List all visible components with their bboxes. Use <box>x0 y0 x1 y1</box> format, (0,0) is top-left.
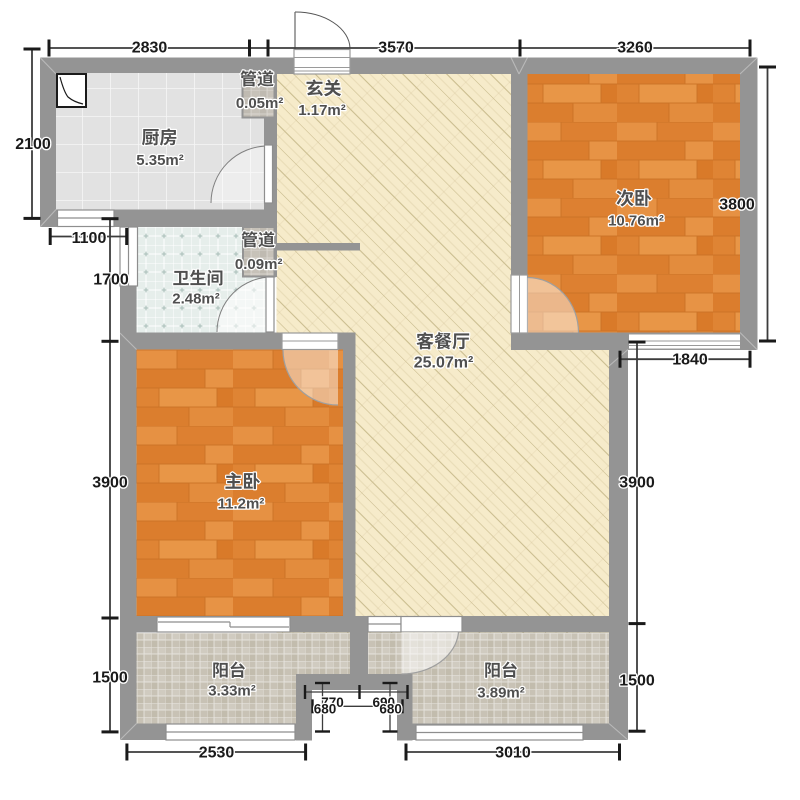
svg-text:3900: 3900 <box>619 475 655 492</box>
svg-text:3260: 3260 <box>617 40 653 57</box>
svg-text:2100: 2100 <box>15 136 51 153</box>
svg-text:680: 680 <box>379 702 402 717</box>
svg-text:1500: 1500 <box>619 673 655 690</box>
svg-text:10.76m²: 10.76m² <box>608 213 664 230</box>
svg-text:1700: 1700 <box>93 272 129 289</box>
svg-text:3900: 3900 <box>92 475 128 492</box>
svg-text:2530: 2530 <box>199 744 235 761</box>
svg-text:3.89m²: 3.89m² <box>477 685 525 702</box>
svg-text:680: 680 <box>314 702 337 717</box>
svg-text:5.35m²: 5.35m² <box>136 152 184 169</box>
svg-text:2.48m²: 2.48m² <box>172 291 220 308</box>
svg-text:0.09m²: 0.09m² <box>235 256 283 273</box>
svg-text:3570: 3570 <box>378 40 414 57</box>
svg-text:0.05m²: 0.05m² <box>236 95 284 112</box>
svg-text:1840: 1840 <box>672 352 708 369</box>
svg-text:3.33m²: 3.33m² <box>208 683 256 700</box>
svg-text:11.2m²: 11.2m² <box>218 496 265 513</box>
svg-text:2830: 2830 <box>132 40 168 57</box>
svg-text:1100: 1100 <box>72 230 107 247</box>
svg-text:1.17m²: 1.17m² <box>298 102 346 119</box>
svg-text:3010: 3010 <box>495 744 531 761</box>
svg-text:3800: 3800 <box>719 197 755 214</box>
svg-text:1500: 1500 <box>92 670 128 687</box>
svg-text:25.07m²: 25.07m² <box>414 355 474 372</box>
